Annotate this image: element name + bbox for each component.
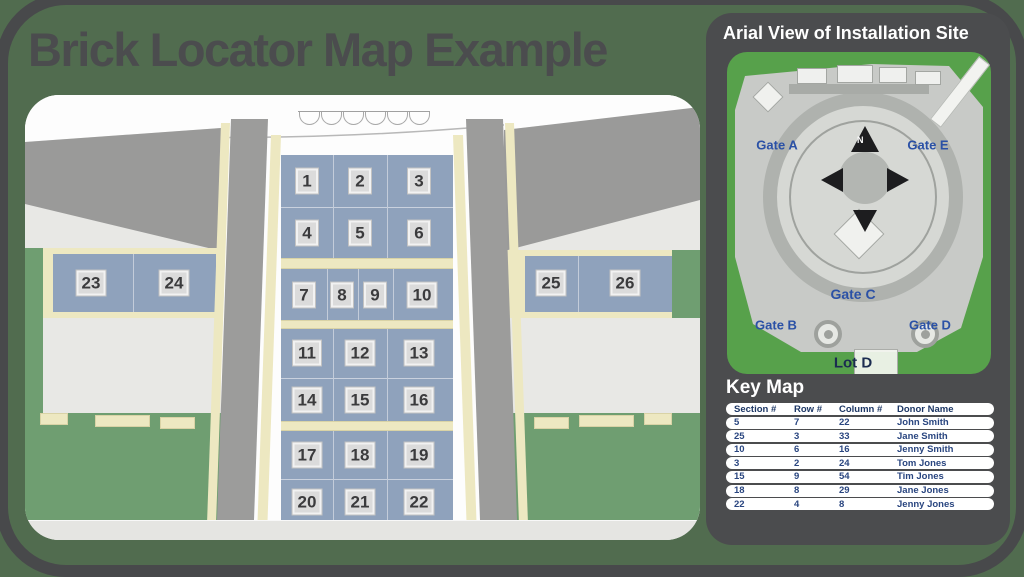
cell-column: 8 bbox=[839, 499, 897, 510]
table-row: 25333Jane Smith bbox=[726, 430, 994, 442]
cell-column: 16 bbox=[839, 444, 897, 455]
table-row: 2248Jenny Jones bbox=[726, 498, 994, 510]
row-divider bbox=[281, 207, 453, 208]
cross-walk bbox=[281, 320, 453, 329]
gate-a-label: Gate A bbox=[756, 138, 797, 153]
brick-locator-map: 23 24 25 26 bbox=[25, 95, 700, 540]
left-planter bbox=[160, 417, 195, 429]
canopy-arch bbox=[365, 112, 386, 125]
cell-donor: John Smith bbox=[897, 417, 994, 428]
cell-row: 9 bbox=[794, 471, 839, 482]
cell-section: 3 bbox=[734, 458, 794, 469]
col-divider bbox=[387, 329, 388, 421]
col-header-donor: Donor Name bbox=[897, 404, 994, 415]
cell-section: 5 bbox=[734, 417, 794, 428]
concourse-roof bbox=[789, 84, 929, 94]
compass-south-arrow bbox=[853, 210, 877, 232]
section-21: 21 bbox=[346, 490, 375, 515]
gate-b-label: Gate B bbox=[755, 318, 797, 333]
cell-column: 54 bbox=[839, 471, 897, 482]
section-22: 22 bbox=[405, 490, 434, 515]
section-18: 18 bbox=[346, 443, 375, 468]
section-16: 16 bbox=[405, 388, 434, 413]
col-divider bbox=[327, 269, 328, 320]
canopy-arch bbox=[409, 112, 430, 125]
cell-row: 4 bbox=[794, 499, 839, 510]
cell-row: 6 bbox=[794, 444, 839, 455]
col-divider bbox=[333, 329, 334, 421]
section-9: 9 bbox=[364, 283, 386, 308]
section-10: 10 bbox=[408, 283, 437, 308]
section-23: 23 bbox=[77, 271, 106, 296]
section-3: 3 bbox=[408, 169, 430, 194]
section-19: 19 bbox=[405, 443, 434, 468]
section-1: 1 bbox=[296, 169, 318, 194]
cell-row: 3 bbox=[794, 431, 839, 442]
building bbox=[915, 71, 941, 85]
cell-donor: Tom Jones bbox=[897, 458, 994, 469]
table-row: 5722John Smith bbox=[726, 417, 994, 429]
col-header-column: Column # bbox=[839, 404, 897, 415]
section-17: 17 bbox=[293, 443, 322, 468]
building bbox=[837, 65, 873, 83]
cell-column: 24 bbox=[839, 458, 897, 469]
cell-column: 29 bbox=[839, 485, 897, 496]
canopy-arch bbox=[299, 112, 320, 125]
central-brick-column: 1 2 3 4 5 6 7 8 9 10 11 12 13 14 15 16 1… bbox=[281, 95, 453, 540]
table-row: 15954Tim Jones bbox=[726, 471, 994, 483]
cell-row: 8 bbox=[794, 485, 839, 496]
right-planter bbox=[579, 415, 634, 427]
col-header-row: Row # bbox=[794, 404, 839, 415]
section-15: 15 bbox=[346, 388, 375, 413]
lot-d-label: Lot D bbox=[834, 355, 872, 372]
section-25: 25 bbox=[537, 271, 566, 296]
key-map-table: Section # Row # Column # Donor Name 5722… bbox=[726, 403, 994, 512]
table-row: 18829Jane Jones bbox=[726, 485, 994, 497]
compass-west-arrow bbox=[821, 168, 843, 192]
section-divider bbox=[578, 256, 579, 312]
left-grass bbox=[25, 413, 221, 520]
section-2: 2 bbox=[349, 169, 371, 194]
section-6: 6 bbox=[408, 221, 430, 246]
cell-section: 10 bbox=[734, 444, 794, 455]
col-header-section: Section # bbox=[734, 404, 794, 415]
cell-section: 22 bbox=[734, 499, 794, 510]
cell-column: 22 bbox=[839, 417, 897, 428]
cell-donor: Jenny Jones bbox=[897, 499, 994, 510]
left-edge-grass bbox=[25, 248, 43, 520]
section-5: 5 bbox=[349, 221, 371, 246]
section-strip-right: 25 26 bbox=[504, 250, 700, 318]
row-divider bbox=[281, 378, 453, 379]
cross-walk bbox=[281, 258, 453, 269]
section-7: 7 bbox=[293, 283, 315, 308]
key-map-header-row: Section # Row # Column # Donor Name bbox=[726, 403, 994, 415]
section-12: 12 bbox=[346, 341, 375, 366]
col-divider bbox=[387, 431, 388, 525]
right-planter bbox=[644, 413, 672, 425]
section-24: 24 bbox=[160, 271, 189, 296]
cell-row: 2 bbox=[794, 458, 839, 469]
section-8: 8 bbox=[331, 283, 353, 308]
section-26: 26 bbox=[611, 271, 640, 296]
bottom-sidewalk bbox=[25, 520, 700, 540]
left-planter bbox=[40, 413, 68, 425]
brick-locator-graphic: { "title": "Brick Locator Map Example", … bbox=[0, 0, 1024, 567]
section-4: 4 bbox=[296, 221, 318, 246]
compass-circle bbox=[839, 152, 891, 204]
cell-donor: Jane Smith bbox=[897, 431, 994, 442]
right-grass bbox=[504, 413, 700, 520]
section-14: 14 bbox=[293, 388, 322, 413]
cell-row: 7 bbox=[794, 417, 839, 428]
section-13: 13 bbox=[405, 341, 434, 366]
left-planter bbox=[95, 415, 150, 427]
col-divider bbox=[387, 155, 388, 258]
section-11: 11 bbox=[293, 341, 321, 366]
row-divider bbox=[281, 479, 453, 480]
gate-c-label: Gate C bbox=[830, 286, 875, 302]
gate-e-label: Gate E bbox=[907, 138, 948, 153]
col-divider bbox=[358, 269, 359, 320]
aerial-panel-title: Arial View of Installation Site bbox=[723, 23, 969, 44]
building bbox=[879, 67, 907, 83]
right-planter bbox=[534, 417, 569, 429]
cell-column: 33 bbox=[839, 431, 897, 442]
compass-rose: N bbox=[829, 126, 901, 250]
canopy-arch bbox=[321, 112, 342, 125]
col-divider bbox=[333, 431, 334, 525]
table-row: 3224Tom Jones bbox=[726, 457, 994, 469]
cell-donor: Jenny Smith bbox=[897, 444, 994, 455]
col-divider bbox=[333, 155, 334, 258]
cell-section: 18 bbox=[734, 485, 794, 496]
cell-section: 15 bbox=[734, 471, 794, 482]
strip-end-grass bbox=[672, 250, 700, 318]
section-20: 20 bbox=[293, 490, 322, 515]
cross-walk bbox=[281, 421, 453, 431]
gate-d-label: Gate D bbox=[909, 318, 951, 333]
aerial-map: N Gate A Gate E Gate C Gate B Gate D Lot… bbox=[727, 52, 991, 374]
section-strip-left: 23 24 bbox=[43, 248, 221, 318]
col-divider bbox=[393, 269, 394, 320]
cell-donor: Tim Jones bbox=[897, 471, 994, 482]
key-map-title: Key Map bbox=[726, 377, 804, 399]
compass-east-arrow bbox=[887, 168, 909, 192]
aerial-view-panel: Arial View of Installation Site N Gate A… bbox=[706, 13, 1010, 545]
canopy-arch bbox=[387, 112, 408, 125]
page-title: Brick Locator Map Example bbox=[28, 22, 718, 77]
canopy-scallops bbox=[298, 111, 430, 125]
compass-north-label: N bbox=[857, 135, 864, 145]
cell-donor: Jane Jones bbox=[897, 485, 994, 496]
section-divider bbox=[133, 254, 134, 312]
canopy-arch bbox=[343, 112, 364, 125]
building bbox=[797, 68, 827, 84]
cell-section: 25 bbox=[734, 431, 794, 442]
spiral-ramp bbox=[814, 320, 842, 348]
compass-north-arrow bbox=[851, 126, 879, 152]
table-row: 10616Jenny Smith bbox=[726, 444, 994, 456]
